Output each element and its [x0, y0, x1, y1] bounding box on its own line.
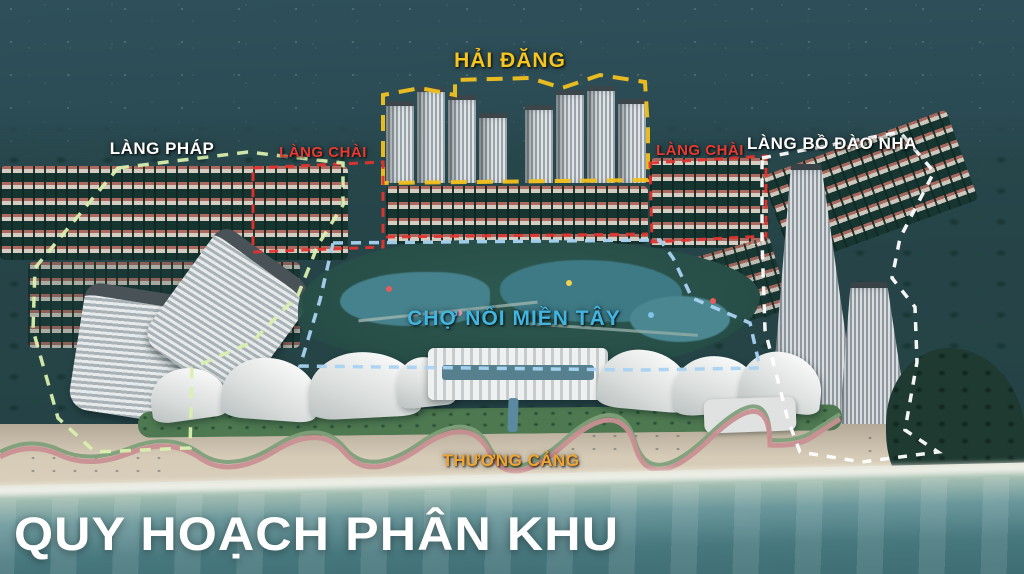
- ride-marker: [566, 280, 572, 286]
- ride-marker: [648, 312, 654, 318]
- beach-umbrella-cluster: [25, 452, 177, 482]
- zone-label-cho-noi-mien-tay: CHỢ NỔI MIỀN TÂY: [407, 307, 621, 331]
- beach-canal: [507, 398, 518, 432]
- villa-rows-center: [386, 186, 648, 244]
- page-title: QUY HOẠCH PHÂN KHU: [14, 508, 619, 560]
- zone-label-hai-dang: HẢI ĐĂNG: [454, 49, 566, 73]
- zone-label-lang-bo-dao-nha: LÀNG BỒ ĐÀO NHA: [747, 134, 917, 154]
- zone-label-thuong-cang: THƯƠNG CẢNG: [442, 451, 579, 471]
- tower: [525, 105, 553, 183]
- tower: [417, 87, 445, 183]
- tower: [479, 113, 507, 183]
- zone-label-lang-phap: LÀNG PHÁP: [110, 139, 215, 159]
- villa-rows-fishing-village-right: [650, 158, 768, 248]
- beach-club-building: [703, 396, 796, 433]
- harbor-market-hall: [428, 348, 608, 400]
- tower: [618, 99, 646, 183]
- tower-gap: [510, 173, 522, 183]
- tower: [587, 86, 615, 183]
- zone-label-lang-chai-right: LÀNG CHÀI: [656, 142, 744, 159]
- beach-umbrella-cluster: [565, 430, 697, 456]
- ride-marker: [710, 298, 716, 304]
- tower: [386, 101, 414, 183]
- zone-label-lang-chai-left: LÀNG CHÀI: [279, 144, 367, 161]
- ride-marker: [386, 286, 392, 292]
- tower: [556, 90, 584, 183]
- market-hall-water-court: [442, 365, 594, 380]
- villa-rows-french-village: [0, 166, 348, 260]
- masterplan-render: HẢI ĐĂNG LÀNG PHÁP LÀNG CHÀI LÀNG CHÀI L…: [0, 0, 1024, 574]
- tower: [448, 95, 476, 183]
- highrise-cluster-hai-dang: [386, 86, 652, 183]
